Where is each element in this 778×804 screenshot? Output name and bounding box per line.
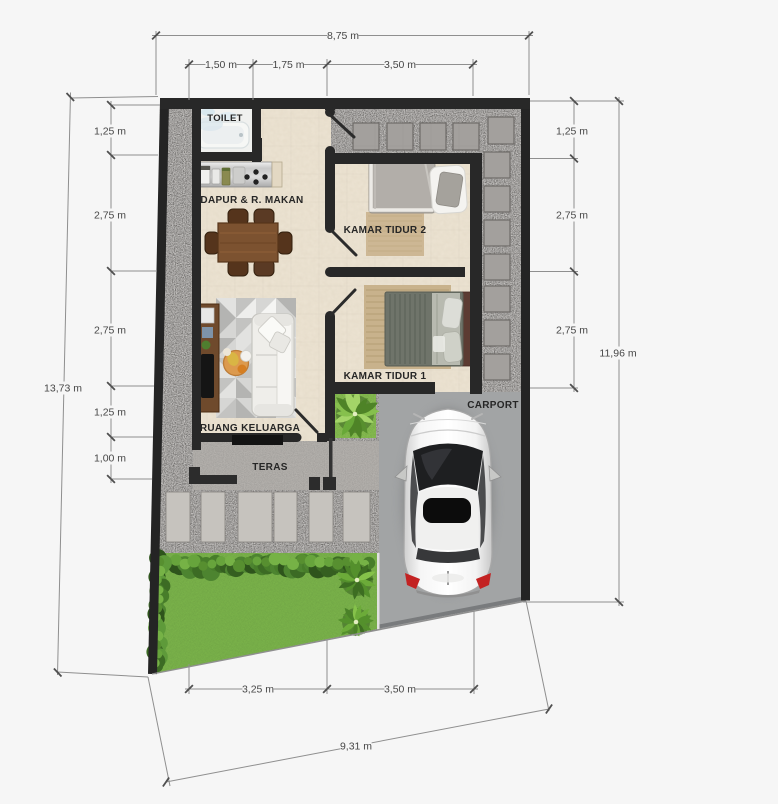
svg-text:1,50 m: 1,50 m [205, 59, 237, 71]
svg-text:1,25 m: 1,25 m [94, 126, 126, 138]
svg-text:2,75 m: 2,75 m [556, 210, 588, 222]
svg-text:3,25 m: 3,25 m [242, 684, 274, 696]
svg-text:2,75 m: 2,75 m [556, 325, 588, 337]
svg-text:KAMAR TIDUR 2: KAMAR TIDUR 2 [344, 225, 427, 236]
svg-text:TERAS: TERAS [252, 462, 287, 473]
svg-text:3,50 m: 3,50 m [384, 684, 416, 696]
svg-text:8,75 m: 8,75 m [327, 30, 359, 42]
svg-text:9,31 m: 9,31 m [340, 741, 372, 753]
svg-text:TOILET: TOILET [207, 113, 242, 124]
svg-text:RUANG KELUARGA: RUANG KELUARGA [200, 423, 300, 434]
svg-text:CARPORT: CARPORT [467, 400, 519, 411]
svg-text:3,50 m: 3,50 m [384, 59, 416, 71]
svg-text:2,75 m: 2,75 m [94, 325, 126, 337]
svg-text:KAMAR TIDUR 1: KAMAR TIDUR 1 [344, 371, 427, 382]
svg-text:11,96 m: 11,96 m [599, 348, 636, 360]
svg-text:DAPUR & R. MAKAN: DAPUR & R. MAKAN [200, 195, 303, 206]
svg-text:1,25 m: 1,25 m [556, 126, 588, 138]
svg-text:1,25 m: 1,25 m [94, 407, 126, 419]
svg-text:1,00 m: 1,00 m [94, 453, 126, 465]
svg-text:2,75 m: 2,75 m [94, 210, 126, 222]
svg-text:1,75 m: 1,75 m [272, 59, 304, 71]
svg-text:13,73 m: 13,73 m [44, 383, 82, 395]
